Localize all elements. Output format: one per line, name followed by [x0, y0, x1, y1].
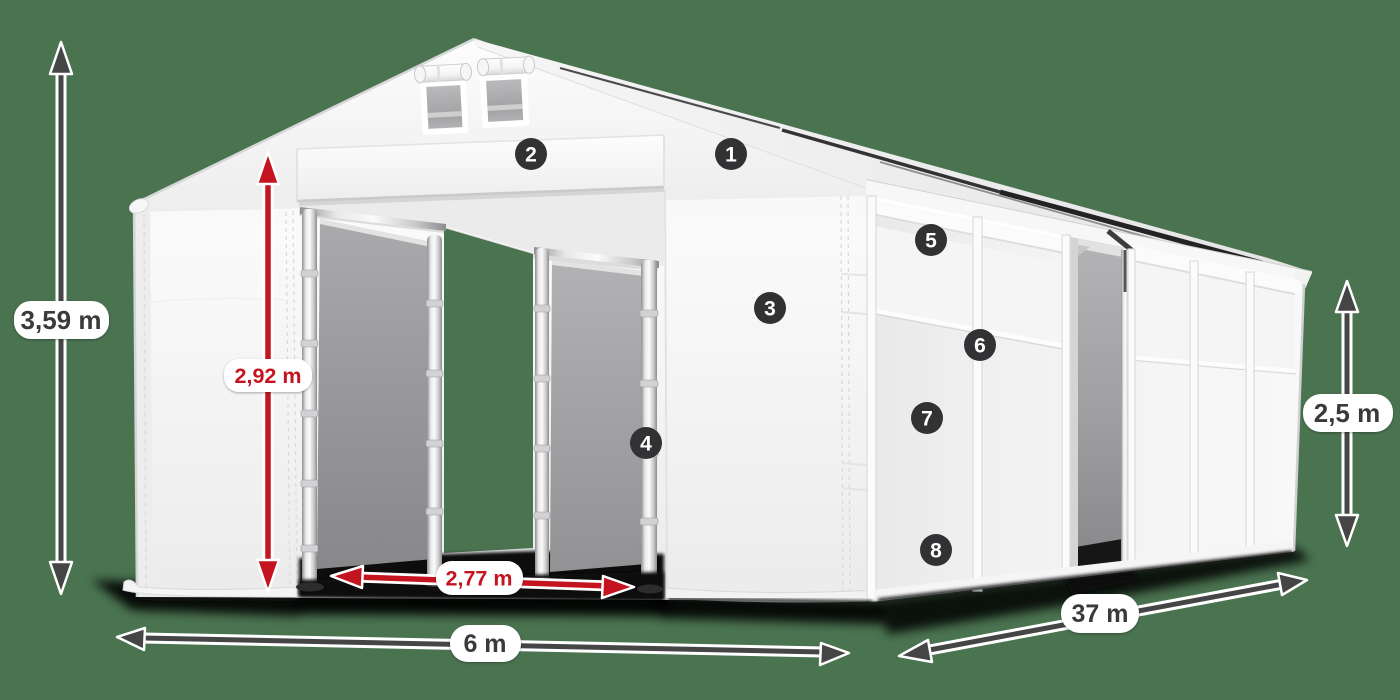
svg-text:3: 3: [764, 298, 776, 321]
svg-text:7: 7: [921, 408, 933, 431]
svg-text:6 m: 6 m: [463, 630, 506, 658]
svg-text:8: 8: [930, 540, 942, 563]
svg-text:4: 4: [640, 433, 652, 456]
svg-text:37 m: 37 m: [1072, 600, 1129, 628]
svg-text:2,92 m: 2,92 m: [235, 364, 302, 388]
svg-text:6: 6: [974, 335, 986, 358]
svg-text:2,5 m: 2,5 m: [1314, 398, 1381, 428]
svg-text:1: 1: [725, 144, 737, 167]
svg-text:3,59 m: 3,59 m: [21, 305, 102, 335]
svg-text:2: 2: [525, 144, 537, 167]
svg-text:2,77 m: 2,77 m: [446, 567, 513, 591]
svg-text:5: 5: [925, 230, 937, 253]
